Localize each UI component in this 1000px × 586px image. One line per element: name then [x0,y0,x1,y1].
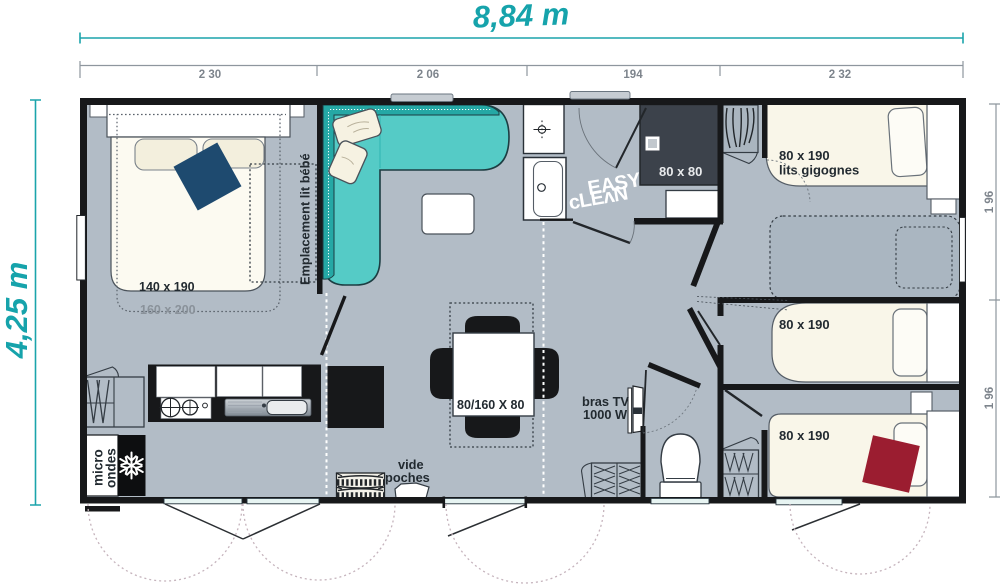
svg-text:140 x 190: 140 x 190 [139,280,195,294]
svg-text:80 x 190: 80 x 190 [779,317,830,332]
svg-text:1000 W: 1000 W [583,407,628,422]
svg-text:Emplacement lit bébé: Emplacement lit bébé [298,153,313,285]
svg-text:80/160 X 80: 80/160 X 80 [457,398,524,412]
svg-text:80 x 190: 80 x 190 [779,148,830,163]
svg-text:2 06: 2 06 [417,69,439,81]
svg-text:4,25 m: 4,25 m [0,262,34,360]
svg-text:lits gigognes: lits gigognes [779,163,859,178]
svg-text:1 96: 1 96 [984,191,996,213]
svg-text:160 x 200: 160 x 200 [140,303,196,317]
svg-text:80 x 190: 80 x 190 [779,428,830,443]
svg-text:8,84 m: 8,84 m [472,0,570,35]
svg-text:1 96: 1 96 [984,387,996,409]
svg-text:194: 194 [623,69,643,81]
svg-text:80 x 80: 80 x 80 [659,164,702,179]
svg-text:ondes: ondes [104,448,119,488]
svg-text:2 32: 2 32 [829,69,851,81]
svg-text:poches: poches [385,470,430,485]
svg-text:2 30: 2 30 [199,69,221,81]
